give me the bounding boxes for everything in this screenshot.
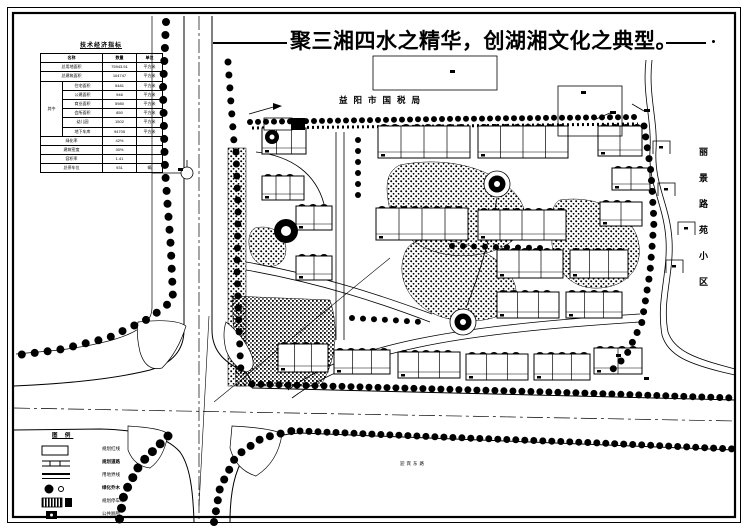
building: [497, 290, 559, 318]
table-cell: 建筑密度: [41, 145, 103, 154]
table-cell: 平方米: [137, 81, 163, 90]
table-cell: 地下车库: [63, 127, 103, 136]
building: [466, 352, 528, 380]
table-cell: 住宅面积: [63, 81, 103, 90]
table-cell: [137, 155, 163, 164]
legend-red-line-symbol: [42, 446, 68, 455]
tree-row: [355, 137, 361, 198]
legend-parking-symbol: [42, 498, 72, 507]
building: [566, 290, 622, 318]
table-cell: 商业面积: [63, 99, 103, 108]
legend-item-label-parking: 规划停车坪: [102, 499, 125, 504]
table-cell: 平方米: [137, 63, 163, 72]
table-cell: 辆: [137, 164, 163, 173]
legend-planned-road-symbol: [42, 461, 70, 466]
building: [600, 200, 642, 226]
building: [612, 166, 650, 190]
slogan-right-rule: [666, 42, 706, 44]
table-cell: 容积率: [41, 155, 103, 164]
building: [262, 174, 304, 200]
tree-row: [349, 315, 421, 325]
table-cell: 5980: [103, 99, 137, 108]
table-cell: 5481: [103, 81, 137, 90]
table-cell: 1502: [103, 118, 137, 127]
building: [598, 124, 642, 156]
building: [478, 124, 568, 158]
building: [570, 248, 628, 278]
building: [478, 208, 566, 240]
table-cell: 总建筑面积: [41, 72, 103, 81]
table-cell: 平方米: [137, 90, 163, 99]
table-header: 数量: [103, 54, 137, 63]
legend-public-toilet-symbol: [46, 511, 57, 519]
indicator-table-grid: 名称数量单位总用地面积75943.51平方米总建筑面积104747平方米其中住宅…: [40, 53, 163, 173]
table-cell: 幼儿园: [63, 118, 103, 127]
sheet-slogan: 聚三湘四水之精华，创湖湘文化之典型。: [290, 25, 677, 55]
table-cell: 绿化率: [41, 136, 103, 145]
table-cell: 平方米: [137, 72, 163, 81]
table-cell: 931: [103, 164, 137, 173]
table-cell: [137, 145, 163, 154]
legend-item-label-land-boundary: 用地界线: [102, 473, 120, 478]
table-cell: 104747: [103, 72, 137, 81]
river: [645, 60, 735, 375]
legend-item-label-red-line-boundary: 规划红线: [102, 447, 120, 452]
table-cell: 946: [103, 90, 137, 99]
legend-symbols: [42, 446, 72, 519]
table-cell: 总停车位: [41, 164, 103, 173]
building: [497, 248, 563, 278]
legend-title: 图 例: [52, 431, 73, 439]
building: [376, 206, 468, 240]
table-cell: 其中: [41, 81, 63, 136]
tree-row: [297, 428, 736, 453]
slogan-left-rule: [213, 42, 287, 44]
table-cell: 公建面积: [63, 90, 103, 99]
building: [296, 254, 332, 280]
legend-item-label-planned-road: 规划道路: [102, 460, 120, 465]
table-cell: [137, 136, 163, 145]
building: [278, 342, 328, 372]
building: [398, 350, 460, 378]
indicator-table: 技术经济指标 名称数量单位总用地面积75943.51平方米总建筑面积104747…: [40, 40, 162, 173]
legend-trees-symbol: [45, 485, 64, 494]
table-cell: 42%: [103, 136, 137, 145]
legend-item-label-trees: 绿化乔木: [102, 486, 120, 491]
building: [334, 348, 390, 374]
table-cell: 总用地面积: [41, 63, 103, 72]
table-cell: 850: [103, 109, 137, 118]
building: [534, 352, 590, 380]
legend-item-label-public-toilet: 公共厕所: [102, 512, 120, 517]
table-cell: 平方米: [137, 99, 163, 108]
table-cell: 30%: [103, 145, 137, 154]
building: [296, 204, 332, 230]
east-district-label: 丽景路苑小区: [697, 147, 710, 303]
south-road-label: 迎宾东路: [400, 461, 426, 467]
building: [378, 124, 470, 158]
drawing-sheet: 聚三湘四水之精华，创湖湘文化之典型。 技术经济指标 名称数量单位总用地面积759…: [0, 0, 749, 530]
table-cell: 94705: [103, 127, 137, 136]
table-cell: 平方米: [137, 118, 163, 127]
table-cell: 会所面积: [63, 109, 103, 118]
table-cell: 平方米: [137, 109, 163, 118]
table-header: 名称: [41, 54, 103, 63]
tree-row: [225, 59, 238, 144]
slogan-rule-dot: [712, 40, 715, 43]
legend-land-boundary-symbol: [42, 474, 70, 479]
table-cell: 75943.51: [103, 63, 137, 72]
indicator-table-title: 技术经济指标: [40, 40, 162, 49]
north-parcel-label: 益阳市国税局: [339, 94, 426, 106]
table-cell: 1.41: [103, 155, 137, 164]
table-header: 单位: [137, 54, 163, 63]
table-cell: 平方米: [137, 127, 163, 136]
